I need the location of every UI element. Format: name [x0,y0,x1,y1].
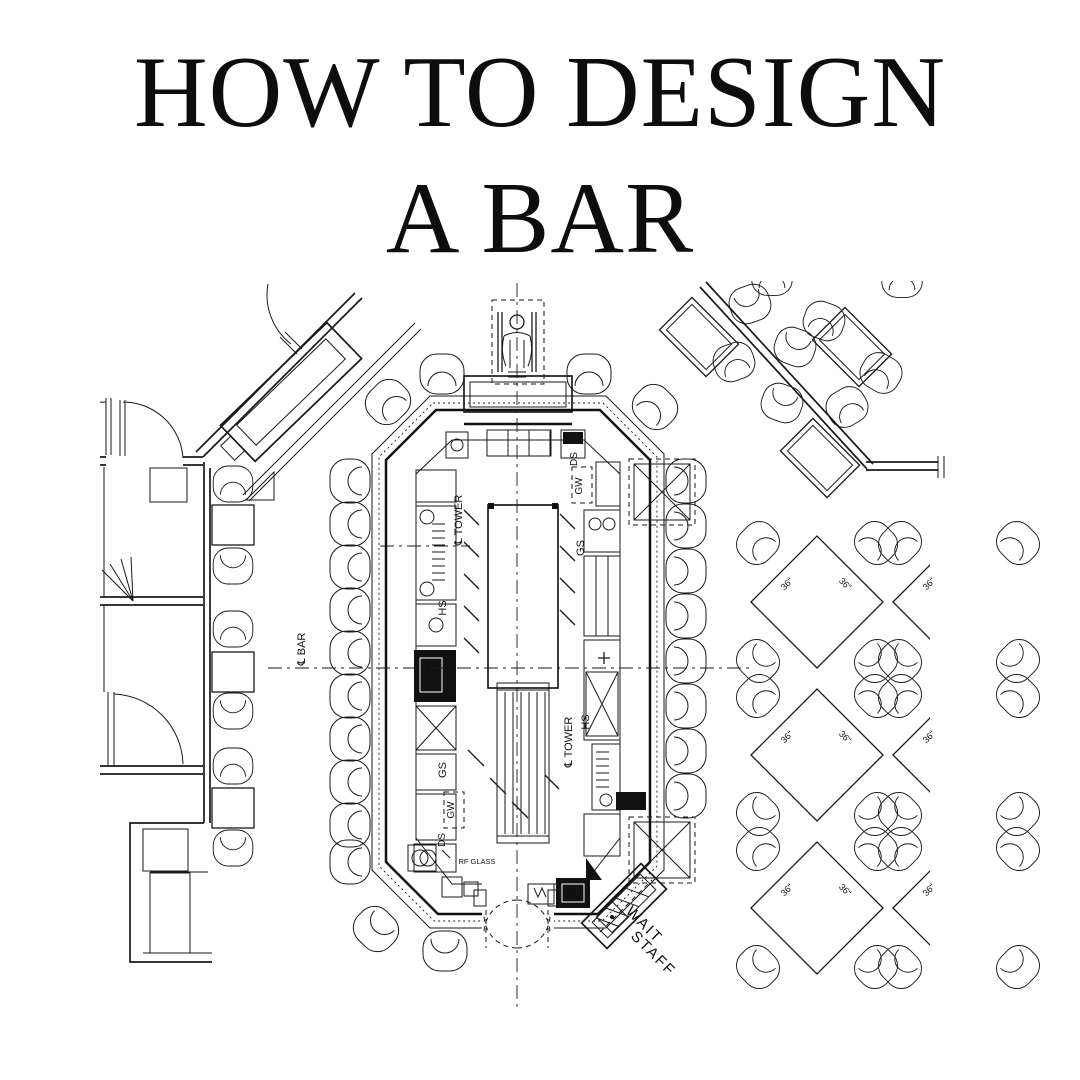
dining-diamond-tables [751,536,1025,974]
dining-chair [213,611,253,647]
dining-chair [730,786,786,842]
bar-stool [330,459,370,503]
dining-chair [990,668,1046,724]
plan-label: 36" [921,882,937,898]
plan-label: DS [437,833,448,847]
plan-label: 36" [837,882,853,898]
dining-chair [990,786,1046,842]
plan-label: 36" [779,729,795,745]
plan-label: 36" [921,576,937,592]
plan-label: ℄ TOWER [563,717,575,769]
bar-stool [666,774,706,818]
bar-stool [423,931,467,971]
dining-chair [213,830,253,866]
banquette-chair [882,261,922,298]
dining-chair [872,939,928,995]
bar-stool [330,545,370,589]
plan-label: POS [565,890,582,899]
bar-stool [330,760,370,804]
dining-chair [730,939,786,995]
dining-chair [990,633,1046,689]
bar-floor-plan: 36"36"36"36"36"36"36"36"36"℄ TOWER℄ TOWE… [0,0,1080,1080]
dining-chair [730,515,786,571]
bar-stool [666,594,706,638]
bar-stool [346,899,405,958]
dining-table [212,788,254,828]
dining-chair [990,515,1046,571]
dining-chair [872,668,928,724]
dining-chair [848,939,904,995]
diamond-table [751,689,883,821]
bar-stool [666,639,706,683]
dining-chair [872,821,928,877]
bar-stool [420,354,464,394]
bar-stool [358,372,417,431]
plan-label: GW [446,801,457,819]
dining-chair [730,821,786,877]
dining-chair [213,548,253,584]
dining-chair [848,786,904,842]
banquette-chair [752,259,792,296]
diamond-table [751,536,883,668]
bar-stool [330,502,370,546]
dining-chair [848,633,904,689]
diamond-table [893,689,1025,821]
dining-chair [213,748,253,784]
plan-label: GS [575,540,587,556]
plan-label: 36" [837,729,853,745]
plan-label: 36" [779,576,795,592]
plan-label: GW [574,477,585,495]
plan-label: GS [437,762,449,778]
dining-table [212,505,254,545]
plan-label: RF GLASS [458,857,495,866]
banquette-chair [820,381,873,433]
dining-chair [872,786,928,842]
banquette-chair [709,338,760,386]
bar-stool [625,377,684,436]
banquette-chair [770,323,821,371]
plan-label: HS [437,600,449,615]
bar-stool [666,549,706,593]
plan-label: 36" [921,729,937,745]
banquette-chair [799,297,850,345]
diamond-table [893,536,1025,668]
wheelchair-figure [492,300,544,384]
dining-chair [848,515,904,571]
diamond-table [751,842,883,974]
banquette-table [780,418,859,497]
diamond-table [893,842,1025,974]
bar-stool [666,459,706,503]
dining-chair [730,633,786,689]
dining-chair [213,693,253,729]
dining-chair [848,668,904,724]
bar-stool [330,588,370,632]
dining-chair [848,821,904,877]
plan-label: ℄ BAR [296,633,308,667]
plan-label: DS [569,452,580,466]
bar-stool [666,729,706,773]
banquette-chair [854,347,907,399]
left-dining-row [212,466,254,866]
dining-chair [872,515,928,571]
banquette-chair [757,379,808,427]
bar-stool [567,354,611,394]
bar-counter [372,376,695,950]
poster: { "page": {"bg": "#ffffff", "ink": "#151… [0,0,1080,1080]
plan-labels: 36"36"36"36"36"36"36"36"36"℄ TOWER℄ TOWE… [296,452,937,980]
dining-diamond-chairs [730,515,1046,995]
bar-stool [330,674,370,718]
bar-stool [666,684,706,728]
bar-stool [330,717,370,761]
plan-label: 36" [837,576,853,592]
dining-chair [990,939,1046,995]
plan-label: 36" [779,882,795,898]
dining-chair [730,668,786,724]
plan-label: ℄ TOWER [453,495,465,547]
dining-chair [990,821,1046,877]
plan-label: HS [580,714,592,729]
dining-chair [213,466,253,502]
dining-chair [872,633,928,689]
bar-stool [666,504,706,548]
banquette-table [659,297,738,376]
dining-table [212,652,254,692]
